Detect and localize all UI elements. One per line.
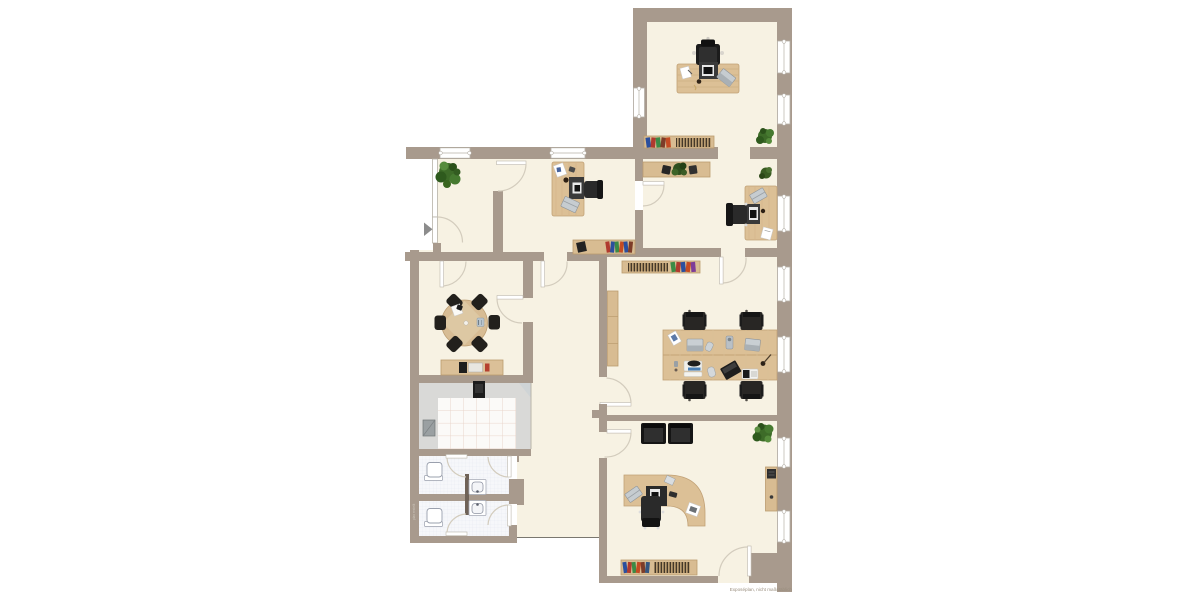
svg-text:Exposéplan, nicht maßstäblich: Exposéplan, nicht maßstäblich (730, 587, 793, 592)
svg-text:plan erstellt: plan erstellt (412, 504, 416, 520)
